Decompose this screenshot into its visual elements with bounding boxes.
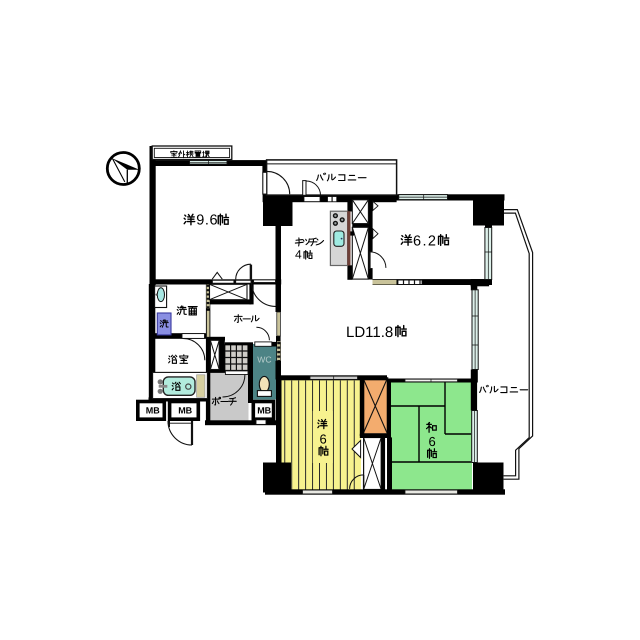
svg-text:LD11.8: LD11.8 bbox=[346, 324, 393, 341]
svg-text:4: 4 bbox=[295, 248, 302, 262]
svg-text:MB: MB bbox=[146, 406, 160, 416]
svg-text:6: 6 bbox=[429, 434, 436, 449]
svg-text:MB: MB bbox=[178, 406, 192, 416]
svg-text:MB: MB bbox=[257, 406, 271, 416]
svg-text:9.6: 9.6 bbox=[196, 213, 218, 229]
svg-text:6: 6 bbox=[320, 432, 327, 447]
svg-text:6.2: 6.2 bbox=[413, 234, 437, 250]
svg-text:WC: WC bbox=[257, 355, 271, 365]
